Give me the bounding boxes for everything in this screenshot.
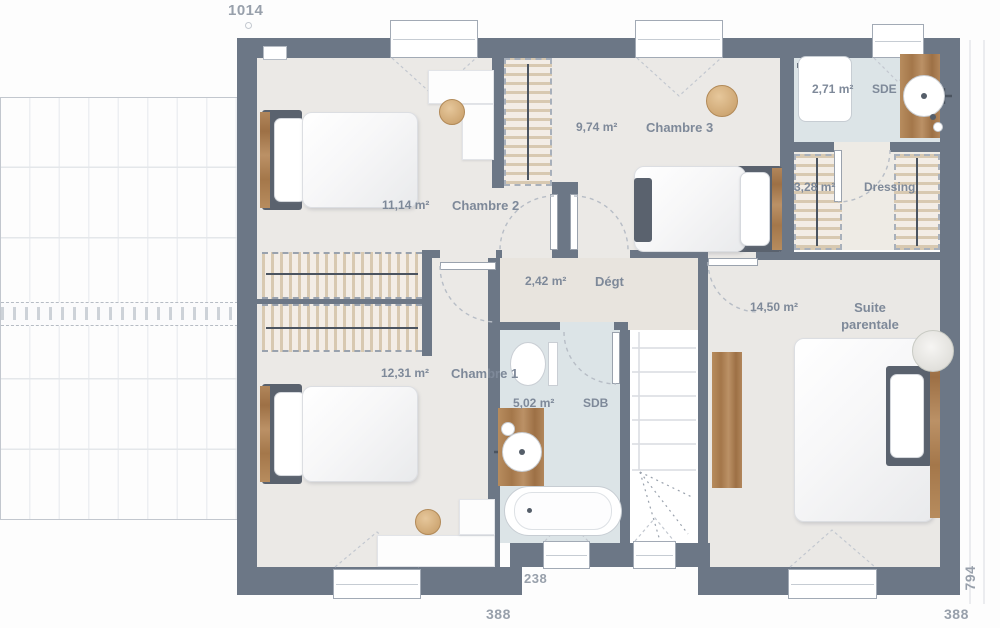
bed-pillow [890,374,924,458]
floor-plan: Chambre 2 11,14 m² Chambre 3 9,74 m² SDE… [0,0,1000,628]
wall [510,543,522,595]
desk [377,535,495,567]
door-leaf-chambre3 [570,194,578,250]
stool [439,99,465,125]
door-leaf-chambre1 [440,262,496,270]
bed-headboard [260,112,270,208]
window [543,541,590,569]
room-area: 2,42 m² [525,274,566,290]
drain [930,114,936,120]
roof-tiles [0,97,237,520]
dimension-bottom-right: 388 [944,606,969,622]
wardrobe-rod [916,158,918,246]
desk [428,70,494,104]
soap-dish [933,122,943,132]
door-leaf-sdb [612,332,620,384]
dimension-notch: 238 [524,571,547,586]
wall-notch [522,567,698,595]
window [390,20,478,58]
console [712,352,742,488]
room-name: SDE [872,82,897,98]
wardrobe-chambre2 [262,252,422,299]
bed-headboard [772,168,782,250]
desk [459,499,495,535]
wardrobe-rod [816,158,818,246]
window [788,569,877,599]
bed-headboard [260,386,270,482]
wardrobe-rod [527,64,529,180]
room-area: 2,71 m² [812,82,853,98]
plant [912,330,954,372]
bed-chambre1 [302,386,418,482]
drain [527,508,532,513]
window [633,541,676,569]
room-name: Chambre 3 [646,120,713,137]
wall [698,252,708,595]
wall [940,38,960,595]
wall [510,543,710,567]
dimension-right: 794 [962,556,978,600]
room-name: SDB [583,396,608,412]
door-opening [578,250,630,258]
stool [415,509,441,535]
door-opening [560,322,614,330]
window [635,20,723,58]
floor-stairs [630,330,698,543]
room-area: 9,74 m² [576,120,617,136]
room-area: 14,50 m² [750,300,798,316]
stool [706,85,738,117]
wall [237,38,960,58]
dimension-marker [245,22,252,29]
door-opening [440,250,496,258]
door-leaf-chambre2 [550,194,558,250]
room-name: Chambre 2 [452,198,519,215]
toilet-tank [548,342,558,386]
bed-blanket [634,178,652,242]
room-name: Dressing [864,180,915,196]
desk [462,104,494,160]
room-name: Dégt [595,274,624,291]
door-opening [834,142,890,152]
roof-ridge [1,302,238,326]
window [333,569,421,599]
niche [263,46,287,60]
room-name: Suite parentale [830,300,910,334]
room-area: 12,31 m² [381,366,429,382]
door-opening [502,250,552,258]
room-name: Chambre 1 [451,366,518,383]
room-area: 3,28 m² [794,180,835,196]
room-area: 5,02 m² [513,396,554,412]
dimension-bottom-left: 388 [486,606,511,622]
door-leaf-suite [708,258,758,266]
wardrobe-rod [266,273,418,275]
drain [519,449,525,455]
wardrobe-rod [266,327,418,329]
bed-chambre2 [302,112,418,208]
room-area: 11,14 m² [382,198,429,214]
drain [921,93,927,99]
bed-pillow [740,172,770,246]
wall [237,38,257,595]
window [872,24,924,58]
dimension-top: 1014 [228,2,263,19]
floor-degt [497,258,708,330]
wall [257,299,432,304]
